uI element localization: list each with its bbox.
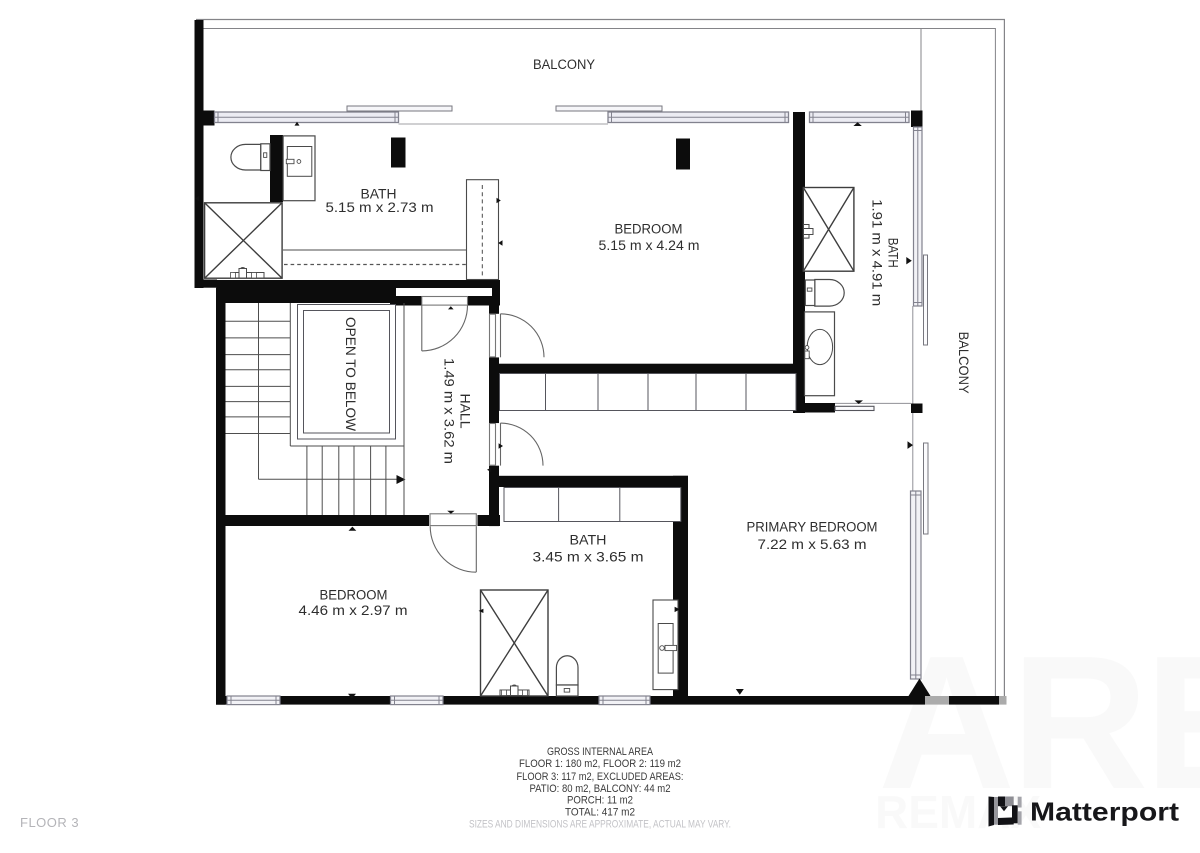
svg-text:4.46 m x 2.97 m: 4.46 m x 2.97 m: [299, 603, 408, 618]
svg-text:PRIMARY BEDROOM: PRIMARY BEDROOM: [747, 520, 878, 535]
svg-text:PORCH: 11 m2: PORCH: 11 m2: [567, 795, 633, 807]
svg-text:SIZES AND DIMENSIONS ARE APPRO: SIZES AND DIMENSIONS ARE APPROXIMATE, AC…: [469, 819, 731, 831]
svg-text:BATH: BATH: [886, 238, 901, 268]
svg-text:FLOOR 3: FLOOR 3: [20, 815, 79, 830]
svg-text:TOTAL: 417 m2: TOTAL: 417 m2: [565, 806, 635, 818]
svg-text:BEDROOM: BEDROOM: [615, 222, 683, 237]
svg-text:BATH: BATH: [570, 533, 607, 548]
svg-text:5.15 m x 2.73 m: 5.15 m x 2.73 m: [326, 200, 434, 215]
svg-text:5.15 m x 4.24 m: 5.15 m x 4.24 m: [599, 238, 700, 253]
svg-text:PATIO: 80 m2, BALCONY: 44 m2: PATIO: 80 m2, BALCONY: 44 m2: [530, 783, 671, 795]
svg-text:BALCONY: BALCONY: [533, 57, 595, 72]
svg-text:FLOOR 1: 180 m2, FLOOR 2: 119: FLOOR 1: 180 m2, FLOOR 2: 119 m2: [519, 758, 681, 770]
svg-text:BEDROOM: BEDROOM: [320, 588, 388, 603]
svg-text:GROSS INTERNAL AREA: GROSS INTERNAL AREA: [547, 746, 654, 758]
svg-text:Matterport: Matterport: [1030, 797, 1179, 827]
svg-text:BALCONY: BALCONY: [956, 332, 971, 394]
svg-text:HALL: HALL: [457, 394, 472, 429]
svg-text:3.45 m x 3.65 m: 3.45 m x 3.65 m: [533, 550, 644, 565]
svg-text:FLOOR 3: 117 m2, EXCLUDED AREA: FLOOR 3: 117 m2, EXCLUDED AREAS:: [517, 771, 684, 783]
svg-text:OPEN TO BELOW: OPEN TO BELOW: [343, 317, 358, 431]
svg-text:1.49 m x 3.62 m: 1.49 m x 3.62 m: [441, 358, 456, 464]
svg-text:1.91 m x 4.91 m: 1.91 m x 4.91 m: [870, 199, 885, 306]
svg-text:7.22 m x 5.63 m: 7.22 m x 5.63 m: [758, 537, 867, 552]
